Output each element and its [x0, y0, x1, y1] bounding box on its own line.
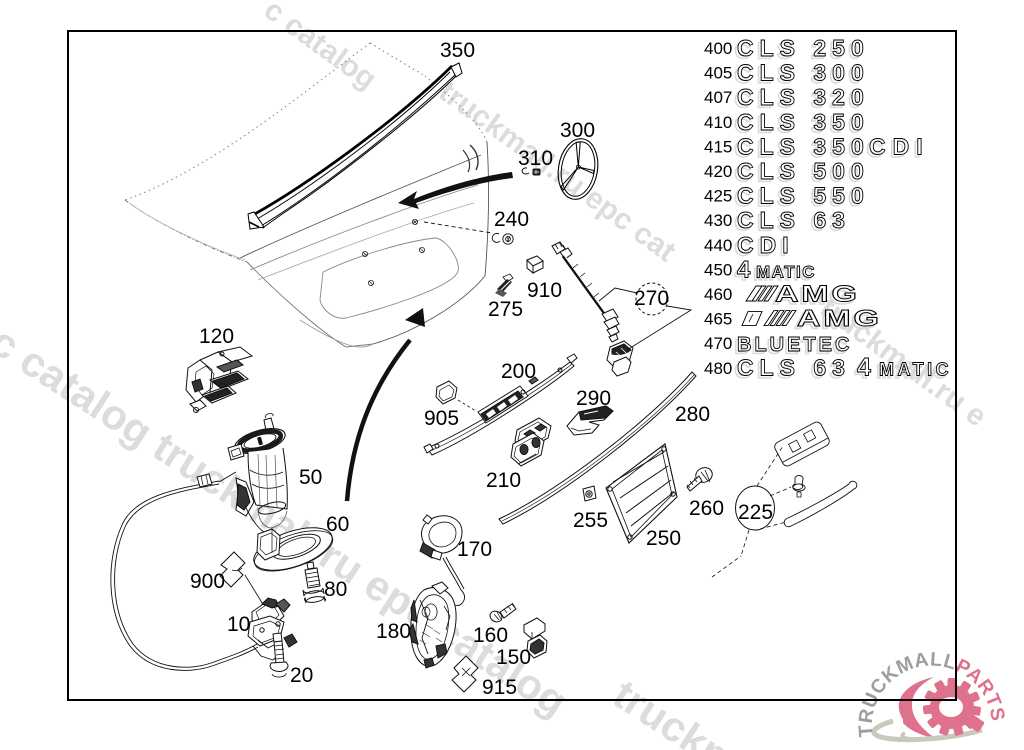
svg-text:MATIC: MATIC — [756, 262, 816, 281]
svg-text:255: 255 — [573, 509, 608, 532]
svg-text:225: 225 — [738, 501, 773, 524]
svg-text:425: 425 — [704, 187, 732, 206]
svg-text:CLS 63: CLS 63 — [737, 207, 851, 233]
svg-text:10: 10 — [227, 613, 250, 636]
svg-text:CLS 300: CLS 300 — [737, 60, 870, 86]
svg-text:60: 60 — [326, 513, 349, 536]
svg-text:405: 405 — [704, 64, 732, 83]
svg-text:4: 4 — [857, 353, 877, 381]
svg-text:MATIC: MATIC — [879, 359, 952, 379]
svg-text:BLUETEC: BLUETEC — [737, 334, 852, 356]
svg-text:350: 350 — [440, 39, 475, 62]
svg-text:440: 440 — [704, 236, 732, 255]
svg-text:250: 250 — [646, 527, 681, 550]
svg-text:430: 430 — [704, 211, 732, 230]
svg-text:407: 407 — [704, 88, 732, 107]
svg-text:CLS 320: CLS 320 — [737, 84, 870, 110]
svg-text:180: 180 — [376, 620, 411, 643]
svg-text:CLS 500: CLS 500 — [737, 158, 870, 184]
svg-text:150: 150 — [496, 646, 531, 669]
svg-text:200: 200 — [501, 360, 536, 383]
svg-text:truckmall.ru epc cat: truckmall.ru epc cat — [433, 75, 682, 268]
svg-text:470: 470 — [704, 334, 732, 353]
svg-text:160: 160 — [473, 624, 508, 647]
svg-text:CLS 350: CLS 350 — [737, 133, 870, 159]
svg-text:CDI: CDI — [737, 232, 795, 258]
svg-text:20: 20 — [290, 664, 313, 687]
svg-text:4: 4 — [737, 256, 756, 283]
svg-text:260: 260 — [689, 497, 724, 520]
svg-text:310: 310 — [518, 147, 553, 170]
svg-text:CDI: CDI — [869, 133, 930, 159]
svg-text:CLS 350: CLS 350 — [737, 109, 870, 135]
svg-text:420: 420 — [704, 162, 732, 181]
svg-text:290: 290 — [576, 387, 611, 410]
svg-text:270: 270 — [634, 287, 669, 310]
svg-text:275: 275 — [488, 298, 523, 321]
svg-text:50: 50 — [299, 466, 322, 489]
svg-text:c catalog: c catalog — [258, 0, 383, 96]
svg-text:460: 460 — [704, 285, 732, 304]
svg-text:905: 905 — [424, 407, 459, 430]
svg-text:400: 400 — [704, 39, 732, 58]
svg-text:u epc catalog truckmall.ru ep: u epc catalog truckmall.ru epc catalog — [0, 270, 576, 725]
svg-text:210: 210 — [486, 469, 521, 492]
svg-text:120: 120 — [199, 325, 234, 348]
svg-text:AMG: AMG — [797, 305, 882, 331]
svg-text:465: 465 — [704, 310, 732, 329]
svg-text:415: 415 — [704, 137, 732, 156]
svg-text:80: 80 — [324, 578, 347, 601]
svg-text:truckmall: truckmall — [605, 670, 787, 750]
svg-text:240: 240 — [494, 208, 529, 231]
svg-text:300: 300 — [560, 119, 595, 142]
svg-text:910: 910 — [527, 279, 562, 302]
svg-text:CLS 550: CLS 550 — [737, 183, 870, 209]
svg-text:450: 450 — [704, 260, 732, 279]
svg-text:CLS 63: CLS 63 — [737, 354, 851, 380]
svg-text:AMG: AMG — [775, 280, 860, 306]
svg-text:480: 480 — [704, 359, 732, 378]
svg-text:CLS 250: CLS 250 — [737, 35, 870, 61]
svg-text:170: 170 — [457, 538, 492, 561]
svg-text:900: 900 — [190, 570, 225, 593]
svg-text:410: 410 — [704, 113, 732, 132]
svg-text:915: 915 — [482, 676, 517, 699]
svg-text:280: 280 — [675, 403, 710, 426]
